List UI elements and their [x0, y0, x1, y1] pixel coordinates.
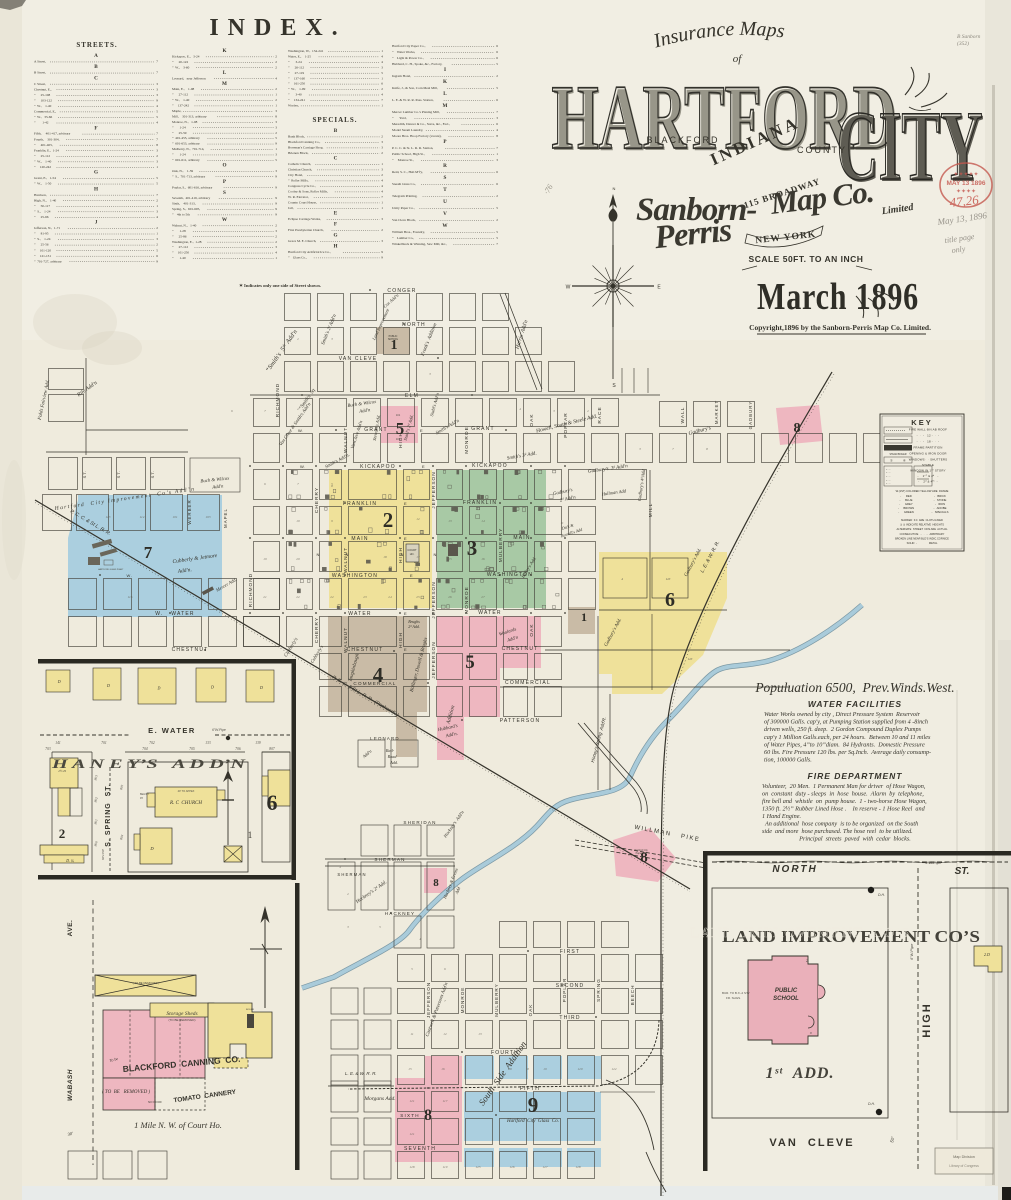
- svg-text:1 Mile N. W. of Court Ho.: 1 Mile N. W. of Court Ho.: [134, 1120, 222, 1130]
- svg-text:4: 4: [275, 251, 277, 255]
- svg-text:Morgans Add.: Morgans Add.: [363, 1096, 395, 1102]
- svg-text:8: 8: [794, 421, 801, 436]
- svg-text:K: K: [222, 48, 226, 54]
- svg-text:3: 3: [275, 229, 277, 233]
- svg-text:128: 128: [575, 1165, 580, 1169]
- svg-text:6: 6: [665, 589, 675, 611]
- svg-text:2: 2: [275, 65, 277, 69]
- svg-text:5: 5: [156, 110, 158, 114]
- svg-text:CHESTNUT: CHESTNUT: [502, 646, 539, 652]
- svg-text:THIRD: THIRD: [559, 1015, 580, 1021]
- svg-text:4: 4: [339, 865, 341, 869]
- svg-text:D.H.: D.H.: [878, 893, 885, 897]
- svg-text:HIGH: HIGH: [398, 547, 404, 563]
- svg-text:5: 5: [496, 62, 498, 66]
- svg-text:VAN CLEVE: VAN CLEVE: [339, 356, 378, 362]
- svg-text:U: U: [443, 199, 447, 205]
- svg-text:” 1-42: ” 1-42: [34, 121, 49, 125]
- svg-text:driven wells, 250 ft. deep. 2: driven wells, 250 ft. deep. 2 Gordon Com…: [764, 726, 922, 733]
- svg-text:” 50-117: ” 50-117: [34, 204, 50, 208]
- svg-text:PATTERSON: PATTERSON: [500, 718, 541, 724]
- svg-text:fire bell and whistle on pu: fire bell and whistle on pump house. 1 -…: [762, 798, 927, 805]
- svg-text:3: 3: [496, 158, 498, 162]
- svg-text:OAK: OAK: [529, 413, 535, 426]
- svg-text:Volunteer, 20 Men. 1 Permane: Volunteer, 20 Men. 1 Permanent Man for d…: [762, 783, 926, 790]
- svg-text:(352): (352): [957, 40, 969, 47]
- svg-text:3: 3: [381, 239, 383, 243]
- svg-text:” 101-250: ” 101-250: [172, 251, 189, 255]
- svg-text:128: 128: [409, 1165, 414, 1169]
- svg-text:8: 8: [527, 1067, 529, 1071]
- svg-text:WASHINGTON: WASHINGTON: [332, 573, 378, 579]
- svg-text:” 137-242: ” 137-242: [172, 104, 189, 108]
- svg-text:▪ ·····: ▪ ·····: [886, 483, 891, 485]
- svg-text:3: 3: [275, 125, 277, 129]
- svg-text:2: 2: [496, 74, 498, 78]
- svg-text:6”W.Pipe: 6”W.Pipe: [212, 728, 226, 732]
- svg-text:7: 7: [496, 110, 498, 114]
- svg-text:Paper Mill: Paper Mill: [636, 852, 647, 855]
- svg-text:cap'y 1 Million Galls.each, pe: cap'y 1 Million Galls.each, per 24 hours…: [764, 734, 931, 741]
- svg-text:5: 5: [156, 176, 158, 180]
- svg-text:ST.: ST.: [82, 470, 87, 479]
- svg-text:10: 10: [296, 519, 300, 523]
- svg-text:5: 5: [496, 230, 498, 234]
- svg-text:H: H: [94, 186, 98, 192]
- svg-text:JEFFERSON: JEFFERSON: [431, 581, 437, 619]
- svg-text:2: 2: [275, 223, 277, 227]
- svg-text:9: 9: [381, 250, 383, 254]
- svg-text:JEFFERSON: JEFFERSON: [426, 982, 431, 1018]
- svg-text:8: 8: [706, 447, 708, 451]
- svg-text:FIRE WALL 6IN AB ROOF: FIRE WALL 6IN AB ROOF: [909, 428, 947, 432]
- svg-text:1 Hand Engine.: 1 Hand Engine.: [762, 813, 801, 820]
- svg-text:OPENING & IRON DOOR: OPENING & IRON DOOR: [909, 452, 946, 456]
- svg-text:2: 2: [496, 194, 498, 198]
- svg-text:COUNTY: COUNTY: [797, 145, 847, 155]
- svg-text:WALNUT: WALNUT: [343, 547, 349, 573]
- svg-text:18: 18: [508, 1067, 512, 1071]
- svg-text:D.H.: D.H.: [868, 1102, 875, 1106]
- svg-text:R. C CHURCH: R. C CHURCH: [169, 801, 202, 806]
- svg-text:MONROE: MONROE: [464, 586, 470, 614]
- svg-text:STABLE: STABLE: [922, 463, 934, 467]
- svg-text:3: 3: [156, 93, 158, 97]
- svg-text:A: A: [94, 53, 98, 59]
- svg-text:6: 6: [231, 409, 233, 413]
- svg-text:9: 9: [156, 98, 158, 102]
- svg-text:8: 8: [156, 143, 158, 147]
- svg-text:2: 2: [297, 337, 299, 341]
- svg-text:S. SPRING ST.: S. SPRING ST.: [105, 783, 112, 846]
- svg-text:125: 125: [475, 1165, 480, 1169]
- svg-text:Water Works owned by city , Di: Water Works owned by city , Direct Press…: [764, 711, 921, 718]
- svg-text:SECOND: SECOND: [556, 983, 585, 989]
- svg-text:2: 2: [275, 234, 277, 238]
- svg-text:KICKAPOO: KICKAPOO: [360, 464, 396, 470]
- svg-text:9: 9: [275, 202, 277, 206]
- svg-text:Map Division: Map Division: [953, 1155, 975, 1159]
- svg-text:7: 7: [264, 409, 266, 413]
- svg-text:4: 4: [381, 54, 383, 58]
- svg-text:3: 3: [429, 372, 431, 376]
- svg-text:60 lbs. Fire Pressure 120 lbs.: 60 lbs. Fire Pressure 120 lbs. per Sq.In…: [764, 749, 931, 756]
- svg-text:FIRE DEPARTMENT: FIRE DEPARTMENT: [808, 771, 903, 781]
- svg-text:An additional hose company i: An additional hose company is to be orga…: [762, 821, 918, 828]
- svg-text:5: 5: [379, 925, 381, 929]
- svg-text:D: D: [560, 521, 564, 525]
- svg-text:HIGH: HIGH: [921, 1002, 933, 1038]
- svg-text:FIRST: FIRST: [560, 949, 580, 955]
- svg-text:H A N E Y’S A D D’N: H A N E Y’S A D D’N: [50, 756, 246, 771]
- svg-text:( TO BE REMOVED ): ( TO BE REMOVED ): [133, 981, 160, 985]
- svg-text:SHERMAN: SHERMAN: [337, 872, 366, 877]
- svg-text:G: G: [94, 170, 98, 176]
- svg-text:2: 2: [381, 173, 383, 177]
- svg-text:6: 6: [496, 182, 498, 186]
- svg-text:STREETS.: STREETS.: [76, 41, 117, 49]
- svg-text:JEFFERSON: JEFFERSON: [431, 641, 437, 679]
- svg-text:” 25-66: ” 25-66: [34, 215, 49, 219]
- svg-text:E: E: [420, 428, 423, 433]
- svg-text:” 81-95: ” 81-95: [34, 232, 49, 236]
- svg-text:INDEX.: INDEX.: [209, 15, 346, 41]
- svg-text:18: 18: [383, 555, 387, 559]
- svg-text:3: 3: [496, 116, 498, 120]
- svg-text:” 1-24: ” 1-24: [172, 153, 186, 157]
- svg-text:14: 14: [481, 519, 485, 523]
- svg-text:ST.: ST.: [116, 470, 121, 479]
- svg-text:117: 117: [443, 1099, 448, 1103]
- svg-text:G: G: [333, 233, 337, 239]
- svg-text:5: 5: [381, 71, 383, 75]
- svg-text:SCHOOL: SCHOOL: [388, 338, 399, 341]
- svg-text:3: 3: [275, 153, 277, 157]
- svg-text:5: 5: [411, 967, 413, 971]
- svg-text:5: 5: [396, 419, 405, 438]
- svg-text:4: 4: [156, 104, 158, 108]
- svg-text:4: 4: [156, 215, 158, 219]
- svg-text:1: 1: [275, 256, 277, 260]
- svg-text:6: 6: [496, 50, 498, 54]
- svg-text:47,26: 47,26: [949, 192, 980, 210]
- svg-text:3: 3: [156, 237, 158, 241]
- svg-text:NORTH: NORTH: [402, 322, 426, 328]
- svg-text:4: 4: [419, 937, 421, 941]
- svg-text:6: 6: [496, 98, 498, 102]
- svg-text:” 101-120: ” 101-120: [34, 248, 51, 252]
- svg-text:1: 1: [156, 204, 158, 208]
- svg-text:6: 6: [496, 44, 498, 48]
- svg-text:3: 3: [553, 409, 555, 413]
- svg-text:4: 4: [381, 93, 383, 97]
- svg-text:1: 1: [248, 830, 253, 840]
- svg-text:MAIN: MAIN: [351, 536, 368, 542]
- svg-text:7: 7: [444, 999, 446, 1003]
- svg-text:9: 9: [275, 142, 277, 146]
- svg-text:2: 2: [156, 154, 158, 158]
- svg-text:B: B: [334, 128, 338, 134]
- svg-text:2: 2: [496, 218, 498, 222]
- svg-text:- 1ˢᵀ & 2ᵈ -: - 1ˢᵀ & 2ᵈ -: [917, 474, 938, 478]
- svg-text:( TO BE REMOVED ): ( TO BE REMOVED ): [102, 1090, 150, 1095]
- svg-text:” 161-250: ” 161-250: [288, 82, 305, 86]
- svg-text:D: D: [106, 683, 110, 688]
- svg-text:702: 702: [149, 741, 155, 745]
- svg-text:4: 4: [156, 121, 158, 125]
- svg-text:2: 2: [275, 87, 277, 91]
- svg-text:HIGH: HIGH: [398, 632, 404, 648]
- svg-text:F: F: [94, 125, 97, 131]
- svg-text:AVE.: AVE.: [67, 920, 74, 937]
- svg-text:6: 6: [267, 790, 278, 815]
- svg-text:M: M: [443, 103, 448, 109]
- svg-text:1: 1: [275, 147, 277, 151]
- svg-text:✦✦✦✦✦: ✦✦✦✦✦: [953, 171, 978, 178]
- svg-text:E. WATER: E. WATER: [148, 726, 196, 735]
- svg-text:3: 3: [381, 217, 383, 221]
- svg-text:W: W: [442, 223, 448, 229]
- svg-text:1: 1: [381, 201, 383, 205]
- svg-text:KEY: KEY: [911, 418, 932, 427]
- svg-text:” 27-112: ” 27-112: [172, 245, 188, 249]
- svg-text:7: 7: [297, 482, 299, 486]
- svg-text:19: 19: [543, 1067, 547, 1071]
- svg-text:SPRING: SPRING: [596, 978, 601, 1002]
- svg-text:WALNUT: WALNUT: [343, 427, 349, 453]
- svg-text:BLACKFORD: BLACKFORD: [646, 135, 719, 145]
- svg-text:16: 16: [441, 1067, 445, 1071]
- svg-text:” 3-40: ” 3-40: [288, 93, 302, 97]
- svg-text:” 25-59: ” 25-59: [172, 131, 187, 135]
- svg-text:⑥: ⑥: [903, 459, 906, 463]
- svg-text:C: C: [334, 156, 338, 162]
- svg-text:7: 7: [672, 447, 674, 451]
- svg-text:Copyright,1896 by the Sanborn-: Copyright,1896 by the Sanborn-Perris Map…: [749, 323, 931, 332]
- svg-text:25: 25: [416, 595, 420, 599]
- svg-text:SCALE 50FT. TO AN INCH: SCALE 50FT. TO AN INCH: [749, 254, 864, 264]
- svg-text:3: 3: [639, 447, 641, 451]
- svg-text:6: 6: [444, 967, 446, 971]
- svg-text:SOLID - METAL: SOLID - METAL: [907, 541, 938, 545]
- svg-text:2: 2: [275, 131, 277, 135]
- svg-text:March 1896: March 1896: [757, 276, 919, 318]
- svg-text:141: 141: [55, 741, 61, 745]
- svg-text:WABASH: WABASH: [67, 1069, 74, 1101]
- svg-text:127: 127: [542, 1165, 547, 1169]
- svg-text:MULBERRY: MULBERRY: [498, 528, 504, 563]
- svg-text:7: 7: [156, 71, 158, 75]
- svg-text:2ᵈ Add.: 2ᵈ Add.: [408, 624, 420, 629]
- svg-text:2: 2: [297, 407, 299, 411]
- svg-text:3: 3: [467, 536, 478, 560]
- svg-text:15: 15: [448, 557, 452, 561]
- svg-text:W. WATER: W. WATER: [155, 611, 195, 617]
- svg-text:8: 8: [275, 114, 277, 118]
- svg-text:1ˢᵗ ADD.: 1ˢᵗ ADD.: [766, 1065, 835, 1082]
- svg-text:WALNUT: WALNUT: [343, 627, 349, 653]
- svg-text:5: 5: [275, 158, 277, 162]
- svg-text:WATER FACILITIES: WATER FACILITIES: [808, 699, 902, 709]
- svg-text:120: 120: [577, 1067, 582, 1071]
- svg-text:LEONARD: LEONARD: [370, 736, 400, 741]
- svg-text:9: 9: [156, 259, 158, 263]
- svg-text:W.: W.: [126, 573, 133, 578]
- svg-text:7: 7: [156, 132, 158, 136]
- svg-text:ST.: ST.: [150, 470, 155, 479]
- svg-text:MAY 13 1896: MAY 13 1896: [946, 180, 985, 187]
- svg-text:- SPECIALS: - SPECIALS: [932, 510, 949, 514]
- svg-text:126: 126: [509, 1165, 514, 1169]
- svg-text:1: 1: [381, 49, 383, 53]
- svg-text:D: D: [57, 679, 61, 684]
- svg-text:1: 1: [381, 206, 383, 210]
- svg-text:1: 1: [496, 152, 498, 156]
- svg-text:- GREEN: - GREEN: [898, 510, 914, 514]
- svg-text:7: 7: [496, 242, 498, 246]
- svg-text:MAIN: MAIN: [513, 535, 530, 541]
- svg-text:5: 5: [496, 86, 498, 90]
- svg-text:MAPEL: MAPEL: [223, 508, 228, 528]
- svg-text:1: 1: [275, 104, 277, 108]
- svg-text:1: 1: [381, 104, 383, 108]
- svg-text:7: 7: [381, 195, 383, 199]
- svg-text:LAND IMPROVEMENT CO’S: LAND IMPROVEMENT CO’S: [690, 926, 910, 941]
- svg-text:O: O: [222, 163, 226, 169]
- svg-text:▪ ·····: ▪ ·····: [886, 469, 891, 471]
- svg-text:705: 705: [189, 747, 195, 751]
- svg-text:D. ¾: D. ¾: [65, 859, 74, 863]
- svg-text:HACKNEY: HACKNEY: [385, 911, 416, 916]
- svg-text:” 1-24: ” 1-24: [172, 125, 186, 129]
- svg-text:SHERIDAN: SHERIDAN: [403, 820, 436, 825]
- svg-text:6: 6: [496, 170, 498, 174]
- svg-text:” 25-108: ” 25-108: [34, 93, 51, 97]
- svg-text:NORTH: NORTH: [772, 864, 817, 875]
- svg-text:Road: Road: [387, 754, 398, 759]
- svg-text:110: 110: [666, 577, 671, 581]
- svg-text:17: 17: [416, 555, 420, 559]
- svg-text:M: M: [222, 81, 227, 87]
- svg-text:2.: 2.: [805, 959, 809, 963]
- svg-text:side and more hose purchased: side and more hose purchased. The hose r…: [762, 828, 913, 835]
- svg-text:1: 1: [581, 610, 587, 624]
- svg-text:3: 3: [347, 925, 349, 929]
- svg-text:6: 6: [496, 56, 498, 60]
- svg-text:21: 21: [263, 595, 267, 599]
- svg-text:3: 3: [156, 87, 158, 91]
- svg-text:2: 2: [381, 135, 383, 139]
- svg-text:E: E: [334, 211, 338, 217]
- svg-text:WATER: WATER: [348, 611, 372, 617]
- svg-text:N: N: [317, 552, 320, 557]
- svg-text:4: 4: [275, 76, 277, 80]
- svg-text:113: 113: [106, 515, 111, 519]
- svg-text:ELM: ELM: [405, 393, 419, 399]
- svg-text:HO.: HO.: [410, 552, 415, 556]
- svg-text:of 300000 Galls. cap'y, at Pum: of 300000 Galls. cap'y, at Pumping Stati…: [764, 719, 928, 726]
- svg-text:W: W: [222, 217, 228, 223]
- svg-text:W.: W.: [300, 464, 305, 469]
- svg-text:9: 9: [275, 174, 277, 178]
- svg-text:5: 5: [156, 248, 158, 252]
- svg-text:9: 9: [331, 519, 333, 523]
- svg-text:” 103-122: ” 103-122: [34, 98, 52, 102]
- svg-text:J: J: [95, 220, 98, 226]
- svg-text:139: 139: [255, 741, 261, 745]
- svg-text:16: 16: [481, 557, 485, 561]
- svg-text:3: 3: [275, 120, 277, 124]
- svg-text:3: 3: [275, 169, 277, 173]
- svg-text:FRAME PARTITION: FRAME PARTITION: [913, 446, 942, 450]
- svg-text:① ② INDICATE RELATIVE HEIGHTS: ① ② INDICATE RELATIVE HEIGHTS: [900, 523, 944, 527]
- svg-text:Rail-: Rail-: [385, 748, 395, 753]
- svg-text:4: 4: [621, 577, 623, 581]
- svg-text:MARKET: MARKET: [714, 400, 719, 424]
- svg-text:4: 4: [381, 60, 383, 64]
- svg-text:GRANT: GRANT: [471, 426, 495, 432]
- svg-text:” 27-112: ” 27-112: [172, 93, 188, 97]
- svg-text:D: D: [259, 685, 263, 690]
- svg-text:704: 704: [142, 747, 148, 751]
- svg-text:6: 6: [264, 482, 266, 486]
- svg-text:x: x: [809, 1031, 812, 1035]
- svg-text:” 27-119: ” 27-119: [288, 71, 304, 75]
- svg-text:12: 12: [416, 517, 420, 521]
- svg-text:SIXTH: SIXTH: [400, 1113, 420, 1118]
- svg-text:L. E. & W. R. R.: L. E. & W. R. R.: [345, 1071, 377, 1076]
- svg-text:F: F: [334, 222, 337, 228]
- svg-text:4: 4: [496, 128, 498, 132]
- svg-text:2: 2: [275, 98, 277, 102]
- svg-text:” 1-40: ” 1-40: [172, 256, 186, 260]
- svg-text:SHERMAN: SHERMAN: [374, 857, 405, 862]
- svg-text:BROKEN LINE NEAR BLD'S INDIC.C: BROKEN LINE NEAR BLD'S INDIC.CORNICE: [895, 536, 949, 540]
- svg-text:FR. SHGS.: FR. SHGS.: [726, 996, 741, 1000]
- svg-text:C: C: [94, 75, 98, 81]
- svg-text:4”W.Pipe: 4”W.Pipe: [925, 860, 942, 865]
- svg-text:9: 9: [275, 207, 277, 211]
- svg-text:FRANKLIN: FRANKLIN: [463, 500, 497, 506]
- svg-text:6: 6: [496, 122, 498, 126]
- svg-text:D: D: [210, 684, 214, 689]
- svg-text:19: 19: [263, 557, 267, 561]
- svg-text:” 120-242: ” 120-242: [34, 165, 51, 169]
- svg-text:HARTFORD GLASS PLANT: HARTFORD GLASS PLANT: [98, 568, 124, 571]
- svg-text:SEVENTH: SEVENTH: [404, 1146, 436, 1152]
- svg-text:WATER: WATER: [478, 610, 502, 616]
- svg-text:B Sanborn: B Sanborn: [957, 34, 981, 40]
- svg-text:8: 8: [496, 134, 498, 138]
- svg-text:13: 13: [448, 519, 452, 523]
- svg-text:✶ Indicates only one side of S: ✶ Indicates only one side of Street show…: [239, 283, 321, 288]
- svg-text:26: 26: [448, 595, 452, 599]
- svg-text:13: 13: [478, 1032, 482, 1036]
- svg-text:122: 122: [611, 1067, 616, 1071]
- svg-text:101: 101: [396, 413, 401, 417]
- svg-text:7: 7: [496, 146, 498, 150]
- svg-text:2: 2: [156, 198, 158, 202]
- svg-text:2: 2: [59, 826, 66, 841]
- svg-text:116: 116: [128, 595, 133, 599]
- svg-text:7: 7: [381, 98, 383, 102]
- svg-text:WINDOWS· · SHUTTERS: WINDOWS· · SHUTTERS: [909, 458, 948, 462]
- svg-text:121: 121: [409, 1099, 414, 1103]
- svg-text:Hartford City Glass Co.: Hartford City Glass Co.: [506, 1119, 559, 1124]
- svg-text:①: ①: [890, 459, 893, 463]
- svg-text:133: 133: [205, 741, 211, 745]
- svg-text:JEFFERSON: JEFFERSON: [431, 471, 437, 509]
